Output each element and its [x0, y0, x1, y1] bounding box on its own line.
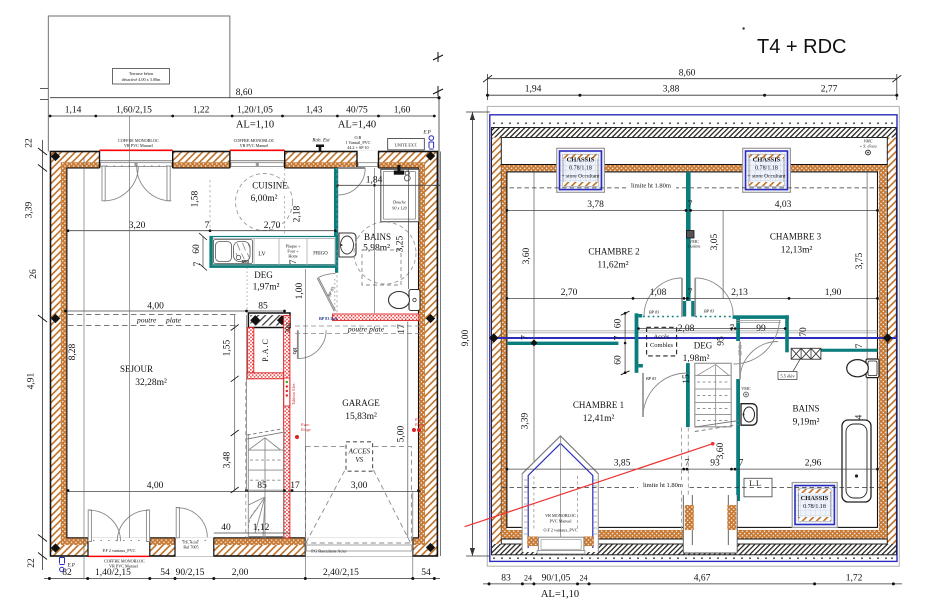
svg-text:54: 54: [160, 568, 170, 578]
svg-text:1,43: 1,43: [306, 106, 323, 116]
svg-text:7: 7: [739, 459, 744, 469]
svg-text:7: 7: [685, 459, 690, 469]
svg-text:3,88: 3,88: [663, 85, 680, 95]
svg-text:26: 26: [29, 269, 39, 279]
svg-text:9,00: 9,00: [461, 329, 471, 346]
svg-text:1,08: 1,08: [650, 288, 667, 298]
svg-text:AL=1,10: AL=1,10: [236, 120, 274, 131]
svg-text:90/2,15: 90/2,15: [176, 568, 205, 578]
svg-text:+ store Occultant: + store Occultant: [562, 174, 600, 180]
svg-text:22: 22: [25, 138, 35, 148]
svg-text:1,40/2,15: 1,40/2,15: [95, 568, 131, 578]
svg-text:3,60: 3,60: [716, 442, 726, 459]
svg-text:FRIGO: FRIGO: [313, 252, 328, 257]
svg-text:3,25: 3,25: [396, 235, 406, 252]
svg-text:2,70: 2,70: [561, 288, 578, 298]
svg-text:+ store Occultant: + store Occultant: [748, 174, 786, 180]
svg-text:poutre: poutre: [136, 316, 157, 325]
svg-text:BAINS: BAINS: [792, 404, 819, 414]
svg-text:E.P: E.P: [67, 564, 75, 569]
svg-text:3,05: 3,05: [710, 233, 720, 250]
svg-text:1,60/2,15: 1,60/2,15: [116, 106, 152, 116]
svg-text:P.F 2 vantaux_PVC: P.F 2 vantaux_PVC: [103, 548, 136, 553]
svg-text:3,60: 3,60: [522, 247, 532, 264]
svg-text:12,41m²: 12,41m²: [583, 414, 615, 424]
svg-text:Cuisine: Cuisine: [688, 244, 701, 249]
svg-text:2,77: 2,77: [821, 85, 838, 95]
svg-text:BP 83 Isol.: BP 83 Isol.: [319, 316, 338, 321]
svg-text:1,00: 1,00: [295, 282, 305, 299]
svg-text:poutre plate: poutre plate: [347, 325, 385, 334]
svg-text:4,00: 4,00: [147, 481, 164, 491]
svg-text:limite ht 1.80m: limite ht 1.80m: [643, 482, 683, 489]
svg-text:VMC: VMC: [741, 386, 751, 391]
svg-text:P.A.C: P.A.C: [261, 338, 270, 362]
svg-text:4,03: 4,03: [775, 200, 792, 210]
svg-text:7: 7: [289, 259, 299, 264]
svg-text:3,48: 3,48: [223, 451, 233, 468]
svg-text:95: 95: [717, 336, 727, 346]
svg-text:CHASSIS: CHASSIS: [567, 157, 595, 164]
svg-text:99: 99: [756, 324, 766, 334]
svg-text:3,39: 3,39: [25, 201, 35, 218]
svg-text:2,70: 2,70: [264, 221, 281, 231]
svg-text:3,85: 3,85: [614, 459, 631, 469]
svg-text:1,72: 1,72: [846, 574, 863, 584]
svg-text:PVC Manuel: PVC Manuel: [550, 519, 573, 524]
svg-text:VR MONOBLOC: VR MONOBLOC: [545, 513, 576, 518]
svg-text:22: 22: [27, 558, 37, 568]
svg-text:L.L: L.L: [749, 479, 761, 488]
svg-text:2,40/2,15: 2,40/2,15: [323, 568, 359, 578]
svg-text:60: 60: [613, 319, 623, 329]
svg-text:AL=1,10: AL=1,10: [541, 589, 579, 600]
svg-text:7: 7: [855, 343, 865, 348]
svg-text:4,67: 4,67: [694, 574, 711, 584]
svg-text:8,60: 8,60: [236, 88, 253, 98]
svg-text:4,00: 4,00: [147, 302, 164, 312]
svg-text:plate: plate: [165, 316, 182, 325]
svg-text:40: 40: [221, 523, 231, 533]
svg-text:Accès: Accès: [654, 334, 670, 341]
svg-text:CHAMBRE 2: CHAMBRE 2: [588, 247, 639, 257]
svg-text:32,28m²: 32,28m²: [135, 378, 167, 388]
svg-text:0.78/1.18: 0.78/1.18: [755, 166, 778, 172]
svg-text:Terrasse béton: Terrasse béton: [129, 71, 154, 76]
svg-text:9,19m²: 9,19m²: [793, 418, 820, 428]
svg-text:1,84: 1,84: [366, 176, 383, 186]
svg-text:7: 7: [613, 335, 623, 340]
svg-text:2,96: 2,96: [805, 459, 822, 469]
svg-text:limite ht 1.80m: limite ht 1.80m: [631, 183, 671, 190]
svg-text:85: 85: [257, 481, 267, 491]
svg-text:15: 15: [682, 374, 692, 384]
svg-text:7: 7: [688, 288, 693, 298]
svg-text:1,14: 1,14: [65, 106, 82, 116]
svg-text:1,98m²: 1,98m²: [683, 354, 710, 364]
svg-text:BAINS: BAINS: [364, 232, 391, 242]
svg-text:5,98m²: 5,98m²: [363, 244, 390, 254]
svg-text:E.P: E.P: [422, 131, 430, 136]
svg-text:5,00: 5,00: [397, 425, 407, 442]
svg-text:3,78: 3,78: [587, 200, 604, 210]
svg-text:44.2 + SP 10: 44.2 + SP 10: [347, 145, 369, 150]
svg-text:54: 54: [421, 568, 431, 578]
svg-text:4,91: 4,91: [27, 372, 37, 389]
svg-text:93: 93: [710, 459, 720, 469]
svg-text:15,83m²: 15,83m²: [345, 412, 377, 422]
svg-text:60: 60: [613, 355, 623, 365]
svg-text:85: 85: [258, 302, 268, 312]
svg-text:O.F 2 vantaux_PVC: O.F 2 vantaux_PVC: [543, 528, 577, 533]
svg-text:P.G Basculante Acier: P.G Basculante Acier: [311, 549, 347, 554]
svg-text:DEG: DEG: [694, 341, 713, 351]
svg-text:0.78/1.18: 0.78/1.18: [803, 504, 826, 510]
svg-text:3,75: 3,75: [855, 252, 865, 269]
svg-text:2,00: 2,00: [232, 568, 249, 578]
svg-text:7: 7: [205, 221, 210, 231]
svg-text:90/1,05: 90/1,05: [542, 574, 571, 584]
svg-text:5.5 élév: 5.5 élév: [780, 374, 795, 379]
svg-text:Combles: Combles: [650, 342, 674, 349]
svg-text:24: 24: [524, 574, 532, 583]
svg-text:1,22: 1,22: [193, 106, 210, 116]
svg-text:3,39: 3,39: [521, 412, 531, 429]
svg-text:GARAGE: GARAGE: [342, 398, 380, 408]
svg-text:CHAMBRE 3: CHAMBRE 3: [770, 232, 822, 242]
svg-text:Rob. Ext: Rob. Ext: [311, 139, 330, 144]
svg-text:DEG: DEG: [254, 270, 273, 280]
svg-text:8,60: 8,60: [679, 69, 696, 79]
svg-text:BP 83: BP 83: [649, 310, 659, 315]
svg-text:1,55: 1,55: [223, 339, 233, 356]
svg-text:0.78/1.18: 0.78/1.18: [569, 166, 592, 172]
svg-text:17: 17: [397, 324, 407, 334]
svg-text:30: 30: [284, 326, 292, 334]
svg-text:8,28: 8,28: [68, 343, 78, 360]
svg-text:11,62m²: 11,62m²: [597, 261, 628, 271]
svg-text:LV: LV: [258, 252, 266, 258]
svg-text:24: 24: [580, 574, 588, 583]
svg-text:Tableau Elec.: Tableau Elec.: [291, 382, 296, 405]
svg-text:1,97m²: 1,97m²: [253, 283, 280, 293]
svg-text:17: 17: [290, 481, 300, 491]
svg-text:2,08: 2,08: [678, 324, 695, 334]
svg-text:CHASSIS: CHASSIS: [801, 495, 829, 502]
svg-text:1,94: 1,94: [525, 85, 542, 95]
svg-text:Ral 7005: Ral 7005: [183, 545, 198, 550]
svg-text:90 x 120: 90 x 120: [392, 206, 407, 211]
svg-text:AL=1,40: AL=1,40: [338, 120, 376, 131]
svg-text:+ S. d'eau: + S. d'eau: [859, 144, 876, 149]
svg-text:VS: VS: [355, 456, 363, 464]
svg-text:60: 60: [192, 244, 202, 254]
svg-text:1,90: 1,90: [825, 288, 842, 298]
svg-text:SEJOUR: SEJOUR: [120, 364, 153, 374]
svg-text:3,20: 3,20: [129, 221, 146, 231]
svg-text:1,58: 1,58: [191, 190, 201, 207]
svg-text:CUISINE: CUISINE: [252, 181, 288, 191]
svg-text:6,00m²: 6,00m²: [251, 194, 278, 204]
svg-text:désactivé 4.00 x 3.00m: désactivé 4.00 x 3.00m: [122, 77, 161, 82]
svg-text:BP 83: BP 83: [646, 376, 656, 381]
svg-text:ACCES: ACCES: [348, 448, 371, 456]
svg-text:7: 7: [521, 335, 531, 340]
svg-text:VR PVC Manuel: VR PVC Manuel: [124, 143, 154, 148]
svg-text:40/75: 40/75: [346, 106, 368, 116]
svg-text:Hotte: Hotte: [288, 254, 297, 259]
svg-text:CHASSIS: CHASSIS: [753, 157, 781, 164]
svg-text:Etage: Etage: [414, 422, 425, 427]
svg-text:LVC: LVC: [242, 260, 249, 264]
svg-text:Douche: Douche: [392, 200, 406, 205]
svg-text:CHAMBRE 1: CHAMBRE 1: [573, 400, 624, 410]
svg-text:1,20/1,05: 1,20/1,05: [237, 106, 273, 116]
svg-text:12,13m²: 12,13m²: [781, 246, 813, 256]
svg-text:3,00: 3,00: [351, 481, 368, 491]
svg-text:7: 7: [688, 200, 693, 210]
svg-text:83: 83: [501, 574, 511, 584]
svg-text:1,60: 1,60: [394, 106, 411, 116]
svg-text:2,13: 2,13: [731, 288, 748, 298]
svg-text:UNITE EXT.: UNITE EXT.: [395, 143, 417, 148]
svg-text:VR PVC Manuel: VR PVC Manuel: [240, 143, 270, 148]
svg-text:T4 + RDC: T4 + RDC: [757, 36, 846, 58]
svg-text:BP 83: BP 83: [704, 309, 714, 314]
svg-text:2,18: 2,18: [293, 205, 303, 222]
svg-text:1,12: 1,12: [253, 523, 270, 533]
svg-text:VR PVC Manuel: VR PVC Manuel: [109, 564, 139, 569]
svg-text:70: 70: [799, 327, 809, 337]
